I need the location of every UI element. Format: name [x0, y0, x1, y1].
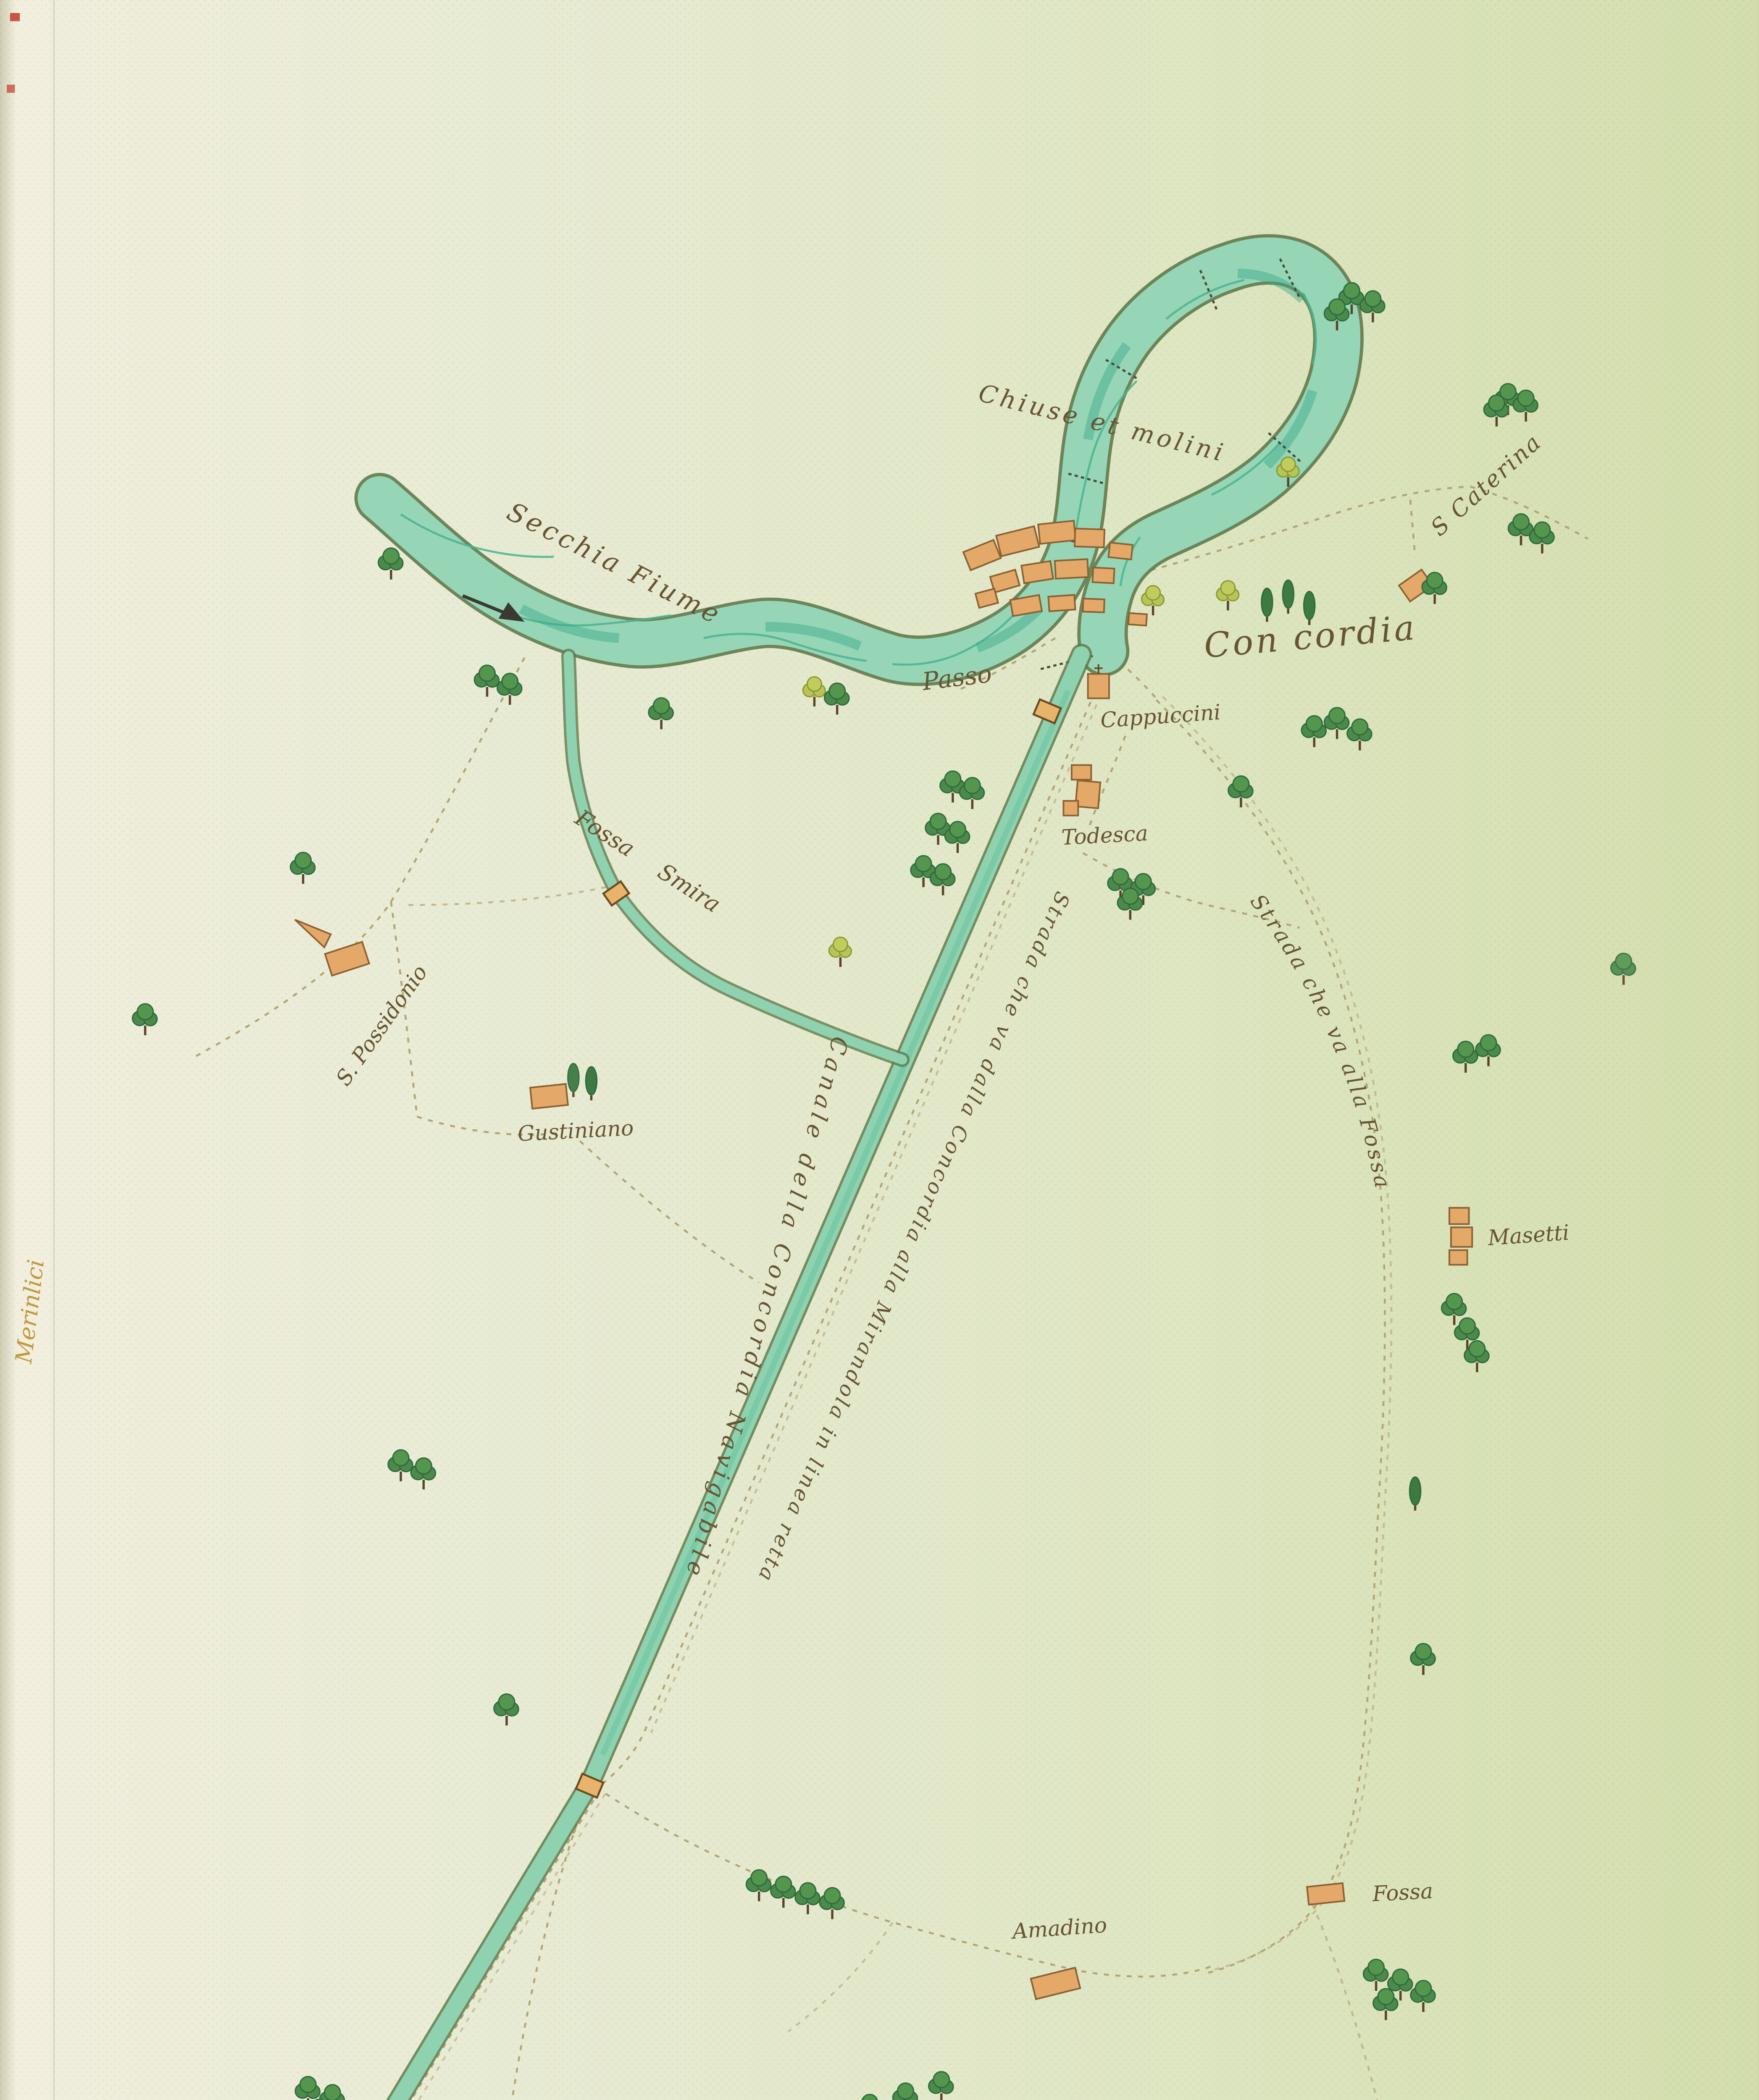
- scan-edge-mark: [10, 13, 20, 21]
- label-fossa: Fossa: [1371, 1878, 1433, 1906]
- building-fossa: [1307, 1883, 1344, 1905]
- manuscript-page: Secchia Fiume Chiuse et molini S Caterin…: [0, 0, 1759, 2100]
- building-gustiniano: [530, 1084, 568, 1109]
- map-canvas: Secchia Fiume Chiuse et molini S Caterin…: [0, 0, 1759, 2100]
- scan-edge-mark: [7, 85, 15, 93]
- label-todesca: Todesca: [1061, 821, 1149, 850]
- building-cappuccini-house: [1072, 765, 1091, 780]
